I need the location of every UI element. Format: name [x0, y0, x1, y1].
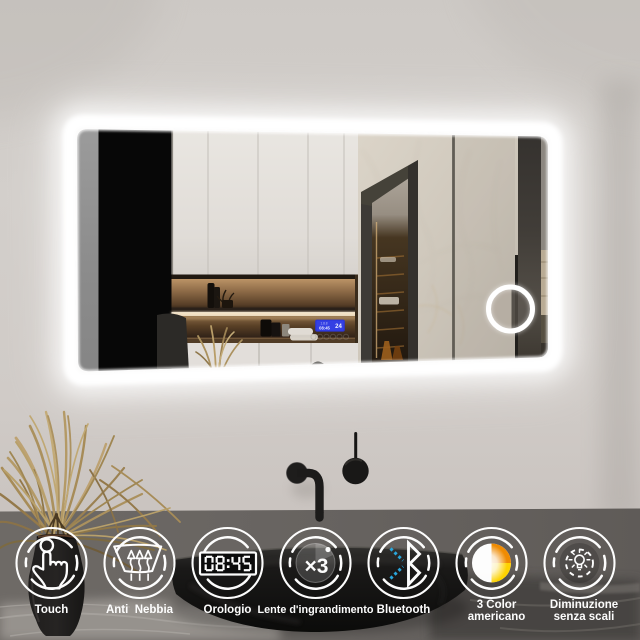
svg-text:Diminuzione: Diminuzione: [550, 599, 618, 611]
svg-text:senza scali: senza scali: [554, 611, 615, 623]
svg-text:×3: ×3: [305, 555, 329, 578]
svg-text:Bluetooth: Bluetooth: [377, 604, 431, 616]
svg-text:3 Color: 3 Color: [477, 599, 517, 611]
svg-text:08:45: 08:45: [319, 326, 330, 331]
svg-text:Touch: Touch: [35, 604, 69, 616]
svg-text:Anti Nebbia: Anti Nebbia: [106, 604, 174, 616]
svg-text:Lente d'ingrandimento: Lente d'ingrandimento: [258, 604, 374, 616]
svg-text:24: 24: [335, 324, 342, 330]
svg-text:Orologio: Orologio: [204, 604, 252, 616]
svg-text:americano: americano: [468, 611, 526, 623]
